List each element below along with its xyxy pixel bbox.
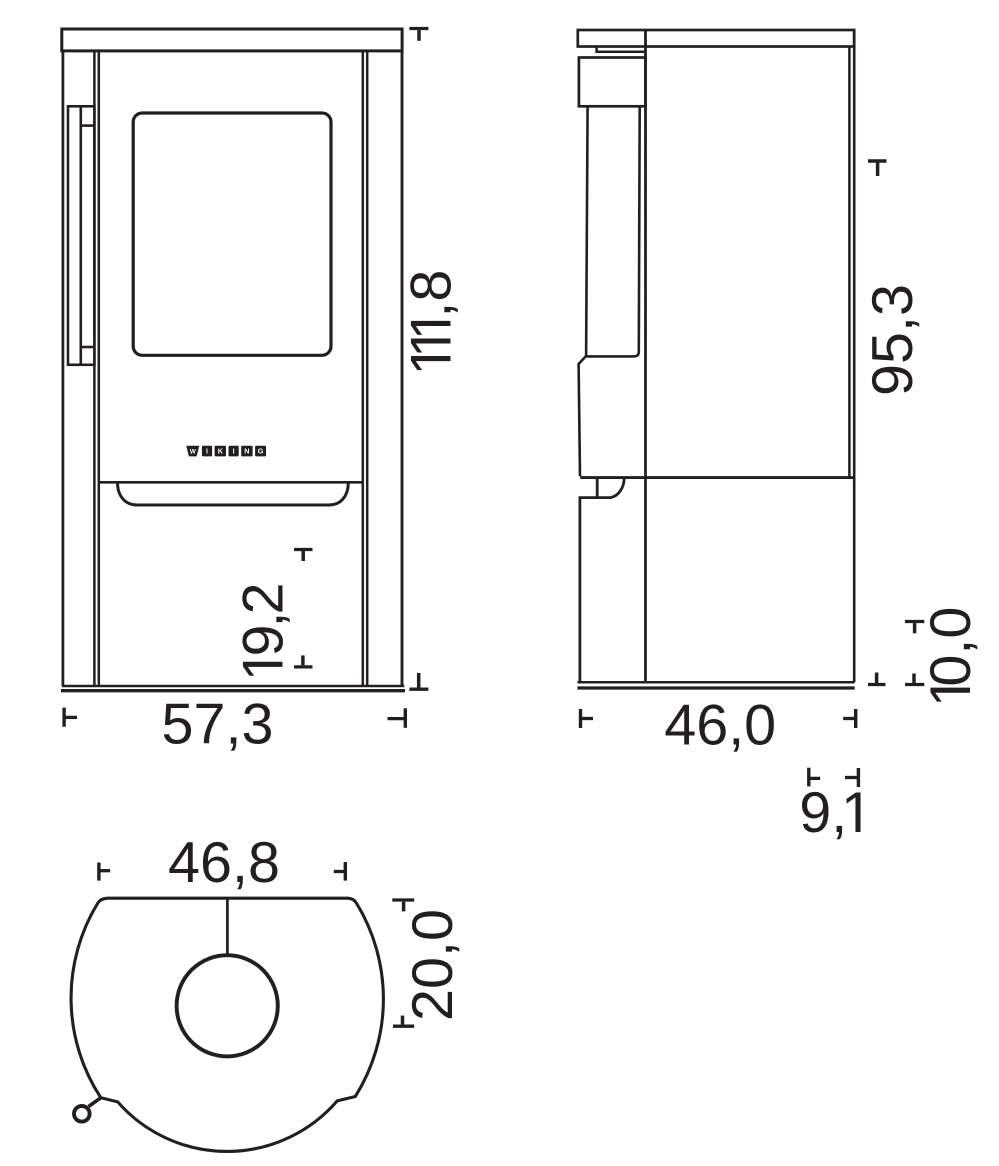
svg-text:W: W — [190, 449, 196, 456]
svg-text:0,0: 0,0 — [919, 607, 983, 687]
svg-text:9,2: 9,2 — [232, 585, 296, 657]
svg-text:,8: ,8 — [400, 270, 464, 318]
svg-text:20,0: 20,0 — [401, 909, 465, 1021]
svg-text:I: I — [233, 447, 235, 456]
svg-text:9,: 9, — [799, 781, 847, 845]
svg-text:46,8: 46,8 — [168, 831, 280, 895]
svg-text:K: K — [218, 447, 224, 456]
svg-text:I: I — [206, 447, 208, 456]
svg-text:95,3: 95,3 — [861, 284, 925, 396]
svg-text:N: N — [244, 447, 249, 456]
svg-text:G: G — [258, 447, 264, 456]
svg-text:46,0: 46,0 — [664, 694, 776, 758]
svg-text:57,3: 57,3 — [162, 693, 274, 757]
